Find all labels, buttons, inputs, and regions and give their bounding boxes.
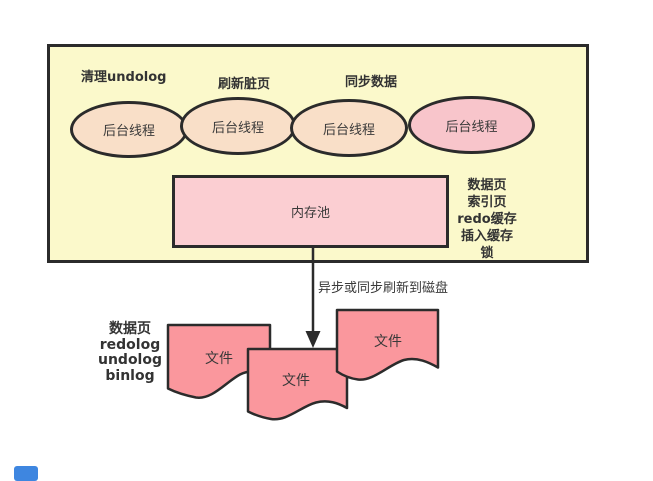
arrow-and-files-layer — [0, 0, 653, 481]
arrow-down-icon — [306, 331, 321, 348]
blue-mark — [14, 466, 38, 481]
file-label-left: 文件 — [205, 348, 233, 368]
file-type-undolog: undolog — [88, 353, 172, 369]
disk-file-types-list: 数据页 redolog undolog binlog — [88, 322, 172, 384]
file-type-data-page: 数据页 — [88, 322, 172, 338]
file-label-middle: 文件 — [282, 370, 310, 390]
diagram-canvas: 清理undolog 刷新脏页 同步数据 后台线程 后台线程 后台线程 后台线程 … — [0, 0, 653, 481]
file-type-binlog: binlog — [88, 369, 172, 385]
file-type-redolog: redolog — [88, 338, 172, 354]
flush-arrow-label: 异步或同步刷新到磁盘 — [318, 277, 448, 296]
file-label-right: 文件 — [374, 331, 402, 351]
